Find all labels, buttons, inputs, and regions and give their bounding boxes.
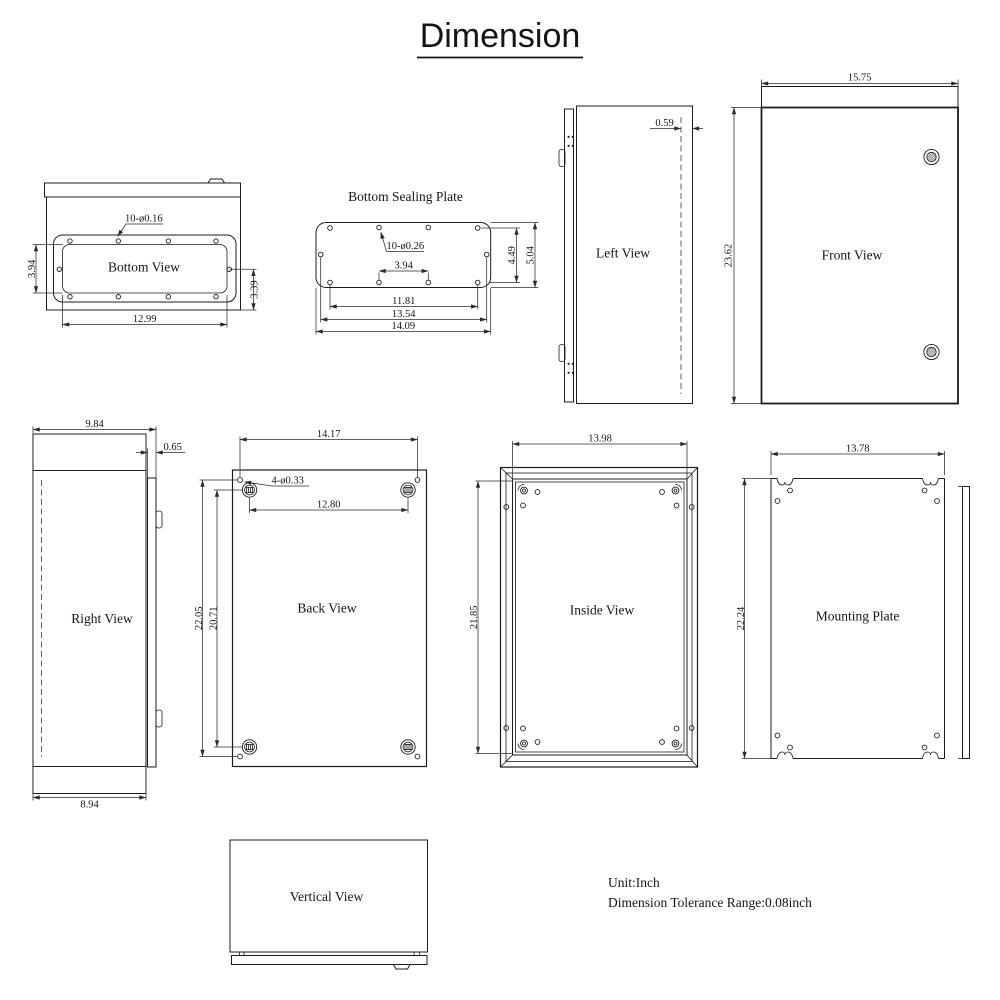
dim-bottom-hole-note: 10-ø0.16 bbox=[118, 214, 164, 237]
dim-label: 23.62 bbox=[724, 244, 735, 268]
sealing-plate-outline bbox=[316, 223, 491, 288]
hinge-icon bbox=[156, 710, 162, 727]
dim-mounting-width: 13.78 bbox=[771, 444, 945, 476]
vertical-flange bbox=[232, 956, 428, 965]
dim-label: 22.24 bbox=[736, 606, 747, 630]
back-corner-holes bbox=[238, 478, 420, 759]
unit-note: Unit:Inch bbox=[608, 875, 660, 890]
dim-back-boss-width: 12.80 bbox=[250, 498, 409, 513]
mounting-boss-icon bbox=[401, 483, 415, 497]
dim-bottom-width: 12.99 bbox=[63, 295, 228, 328]
back-view: 14.17 4-ø0.33 12.80 22.05 20.71 Back Vie… bbox=[194, 429, 427, 767]
dim-label: 13.78 bbox=[846, 444, 870, 455]
mounting-boss-icon bbox=[401, 740, 415, 754]
dim-label: 3.94 bbox=[27, 259, 38, 278]
dim-label: 14.17 bbox=[317, 429, 341, 440]
left-view: 0.59 Left View bbox=[559, 106, 703, 404]
right-view: 9.84 0.65 8.94 Right View bbox=[33, 419, 185, 811]
dim-label: 11.81 bbox=[392, 296, 415, 307]
vertical-view: Vertical View bbox=[230, 840, 428, 969]
drawing-notes: Unit:Inch Dimension Tolerance Range:0.08… bbox=[608, 875, 812, 910]
dim-label: 0.59 bbox=[655, 118, 673, 129]
mounting-boss-icon bbox=[242, 483, 256, 497]
front-view: 15.75 23.62 Front View bbox=[724, 73, 958, 404]
mounting-plate-side-profile bbox=[958, 487, 970, 759]
page-title: Dimension bbox=[420, 17, 581, 55]
dim-label: 10-ø0.26 bbox=[387, 241, 425, 252]
bottom-flange bbox=[45, 183, 241, 197]
dim-sealing-hole-note: 10-ø0.26 bbox=[381, 232, 424, 252]
corner-stud-icon bbox=[672, 485, 681, 494]
front-top-flange bbox=[762, 87, 959, 108]
dim-label: 12.99 bbox=[133, 314, 157, 325]
corner-stud-icon bbox=[518, 740, 527, 749]
lock-icon bbox=[924, 344, 939, 359]
left-view-label: Left View bbox=[596, 246, 650, 261]
dim-sealing-inner-width: 11.81 bbox=[330, 286, 478, 310]
sealing-plate-label: Bottom Sealing Plate bbox=[348, 189, 463, 204]
corner-stud-icon bbox=[518, 485, 527, 494]
lock-icon bbox=[924, 149, 939, 164]
dim-label: 3.39 bbox=[249, 280, 260, 298]
dim-label: 10-ø0.16 bbox=[125, 214, 163, 225]
dim-label: 13.98 bbox=[588, 434, 612, 445]
inside-view-label: Inside View bbox=[570, 603, 635, 618]
dim-label: 12.80 bbox=[317, 500, 341, 511]
dim-left-door-depth: 0.59 bbox=[650, 118, 703, 129]
vertical-view-label: Vertical View bbox=[290, 889, 364, 904]
back-body bbox=[233, 470, 427, 767]
inside-view: 13.98 21.85 Inside View bbox=[469, 434, 698, 768]
tolerance-note: Dimension Tolerance Range:0.08inch bbox=[608, 895, 812, 910]
dim-bottom-corner-offset: 3.39 bbox=[229, 269, 260, 310]
corner-stud-icon bbox=[672, 740, 681, 749]
dim-right-door-depth: 0.65 bbox=[136, 442, 185, 478]
dim-label: 3.94 bbox=[395, 261, 414, 272]
dim-label: 0.65 bbox=[164, 442, 182, 453]
dim-label: 21.85 bbox=[469, 605, 480, 629]
drain-bump-icon bbox=[208, 179, 225, 183]
mounting-plate-view: 13.78 22.24 Mounting Plate bbox=[736, 444, 970, 759]
dim-mounting-height: 22.24 bbox=[736, 479, 771, 759]
dim-sealing-center-pitch: 3.94 bbox=[379, 261, 428, 281]
back-view-label: Back View bbox=[297, 601, 357, 616]
dim-label: 4-ø0.33 bbox=[272, 476, 304, 487]
dim-right-top-depth: 9.84 bbox=[33, 419, 156, 478]
drawing-canvas: Dimension Bottom View 10-ø0.16 3.94 bbox=[0, 0, 1000, 1000]
foot-tab bbox=[414, 952, 420, 956]
right-view-label: Right View bbox=[71, 611, 133, 626]
front-view-label: Front View bbox=[822, 248, 883, 263]
dim-label: 15.75 bbox=[848, 73, 872, 84]
bottom-view-label: Bottom View bbox=[108, 260, 180, 275]
dim-front-height: 23.62 bbox=[724, 108, 762, 404]
foot-tab bbox=[240, 952, 245, 956]
hinge-screw-dots bbox=[568, 136, 574, 374]
dim-back-boss-height: 20.71 bbox=[209, 490, 243, 747]
drain-bump-icon bbox=[394, 965, 411, 970]
mounting-boss-icon bbox=[242, 740, 256, 754]
dim-label: 14.09 bbox=[391, 321, 415, 332]
dim-label: 4.49 bbox=[507, 246, 518, 264]
dim-label: 8.94 bbox=[80, 800, 99, 811]
sealing-plate-holes bbox=[318, 225, 489, 285]
dim-right-bottom-depth: 8.94 bbox=[33, 767, 146, 811]
dim-label: 22.05 bbox=[194, 606, 205, 630]
right-door-edge bbox=[148, 478, 157, 767]
hinge-icon bbox=[156, 511, 162, 528]
dim-label: 13.54 bbox=[392, 309, 416, 320]
dim-label: 5.04 bbox=[526, 245, 537, 264]
dim-front-width: 15.75 bbox=[762, 73, 959, 87]
page-header: Dimension bbox=[417, 17, 583, 58]
dim-label: 9.84 bbox=[85, 419, 104, 430]
left-door-edge bbox=[565, 109, 574, 402]
dim-label: 20.71 bbox=[209, 606, 220, 630]
bottom-view: Bottom View 10-ø0.16 3.94 3.39 12.99 bbox=[27, 179, 260, 328]
mounting-plate-label: Mounting Plate bbox=[816, 609, 900, 624]
dim-inside-width: 13.98 bbox=[513, 434, 688, 480]
dimension-drawing: Dimension Bottom View 10-ø0.16 3.94 bbox=[0, 0, 1000, 1000]
bottom-sealing-plate-view: Bottom Sealing Plate 10-ø0.26 3.94 11.81… bbox=[316, 189, 539, 335]
